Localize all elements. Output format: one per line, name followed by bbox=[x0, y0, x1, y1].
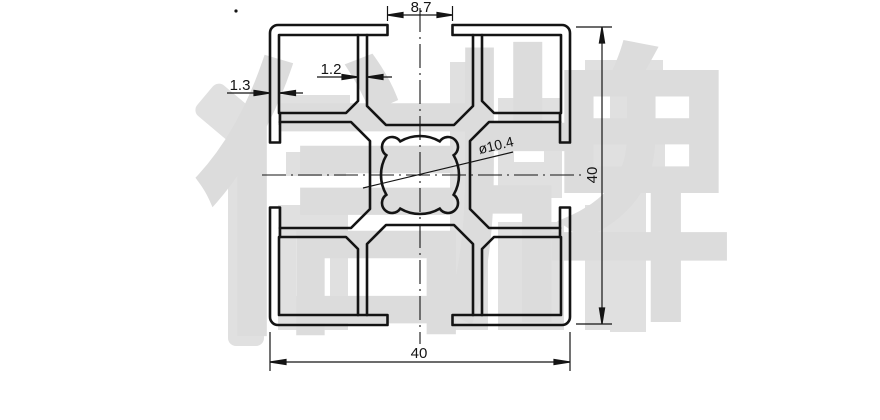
dim-label-bore: ø10.4 bbox=[477, 133, 516, 157]
arrowhead bbox=[342, 74, 358, 79]
arrowhead bbox=[367, 74, 383, 79]
dim-label-width: 40 bbox=[411, 345, 428, 362]
profile-drawing-svg: 8.7 1.2 1.3 ø10.4 bbox=[0, 0, 880, 420]
centerlines bbox=[262, 8, 585, 344]
dim-outer-wall: 1.3 bbox=[227, 77, 303, 96]
chamber-bottom-right bbox=[482, 237, 561, 315]
chamber-top-right bbox=[482, 35, 561, 113]
arrowhead bbox=[388, 12, 404, 17]
stray-dot bbox=[234, 9, 237, 12]
arrowhead bbox=[270, 359, 286, 364]
arrowhead bbox=[254, 90, 270, 95]
dim-inner-wall: 1.2 bbox=[317, 61, 392, 80]
dim-label-outer-wall: 1.3 bbox=[230, 77, 251, 94]
technical-drawing-page: 信 牌 bbox=[0, 0, 880, 420]
dim-label-height: 40 bbox=[584, 167, 601, 184]
chamber-top-left bbox=[279, 35, 358, 113]
arrowhead bbox=[599, 308, 604, 324]
dim-label-slot-width: 8.7 bbox=[411, 0, 432, 16]
arrowhead bbox=[437, 12, 453, 17]
arrowhead bbox=[554, 359, 570, 364]
dim-height: 40 bbox=[576, 27, 612, 324]
arrowhead bbox=[599, 27, 604, 43]
dim-label-inner-wall: 1.2 bbox=[321, 61, 342, 78]
chamber-bottom-left bbox=[279, 237, 358, 315]
arrowhead bbox=[280, 90, 296, 95]
